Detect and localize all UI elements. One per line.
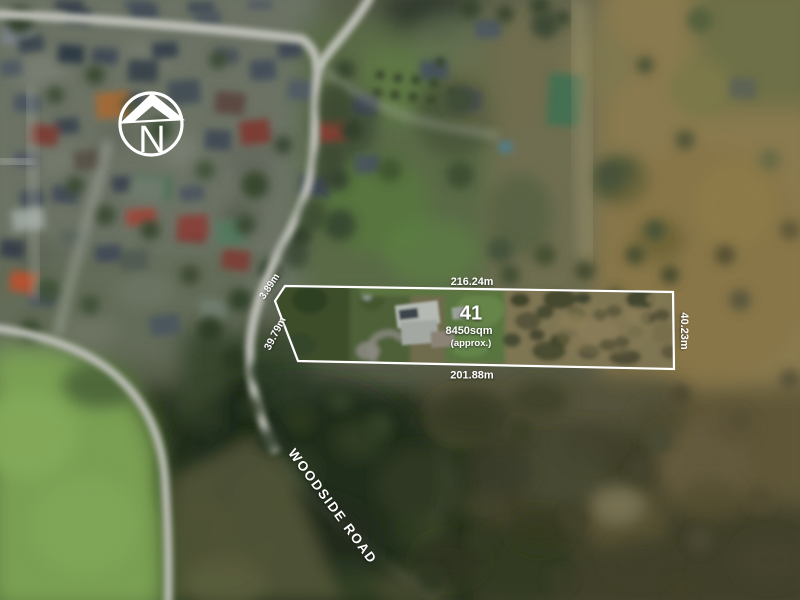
svg-text:N: N bbox=[138, 119, 165, 161]
svg-text:41: 41 bbox=[460, 303, 482, 325]
svg-text:8450sqm: 8450sqm bbox=[445, 325, 492, 337]
svg-text:(approx.): (approx.) bbox=[451, 338, 492, 349]
svg-text:201.88m: 201.88m bbox=[450, 370, 494, 382]
svg-text:40.23m: 40.23m bbox=[678, 312, 690, 350]
svg-text:216.24m: 216.24m bbox=[451, 276, 494, 288]
